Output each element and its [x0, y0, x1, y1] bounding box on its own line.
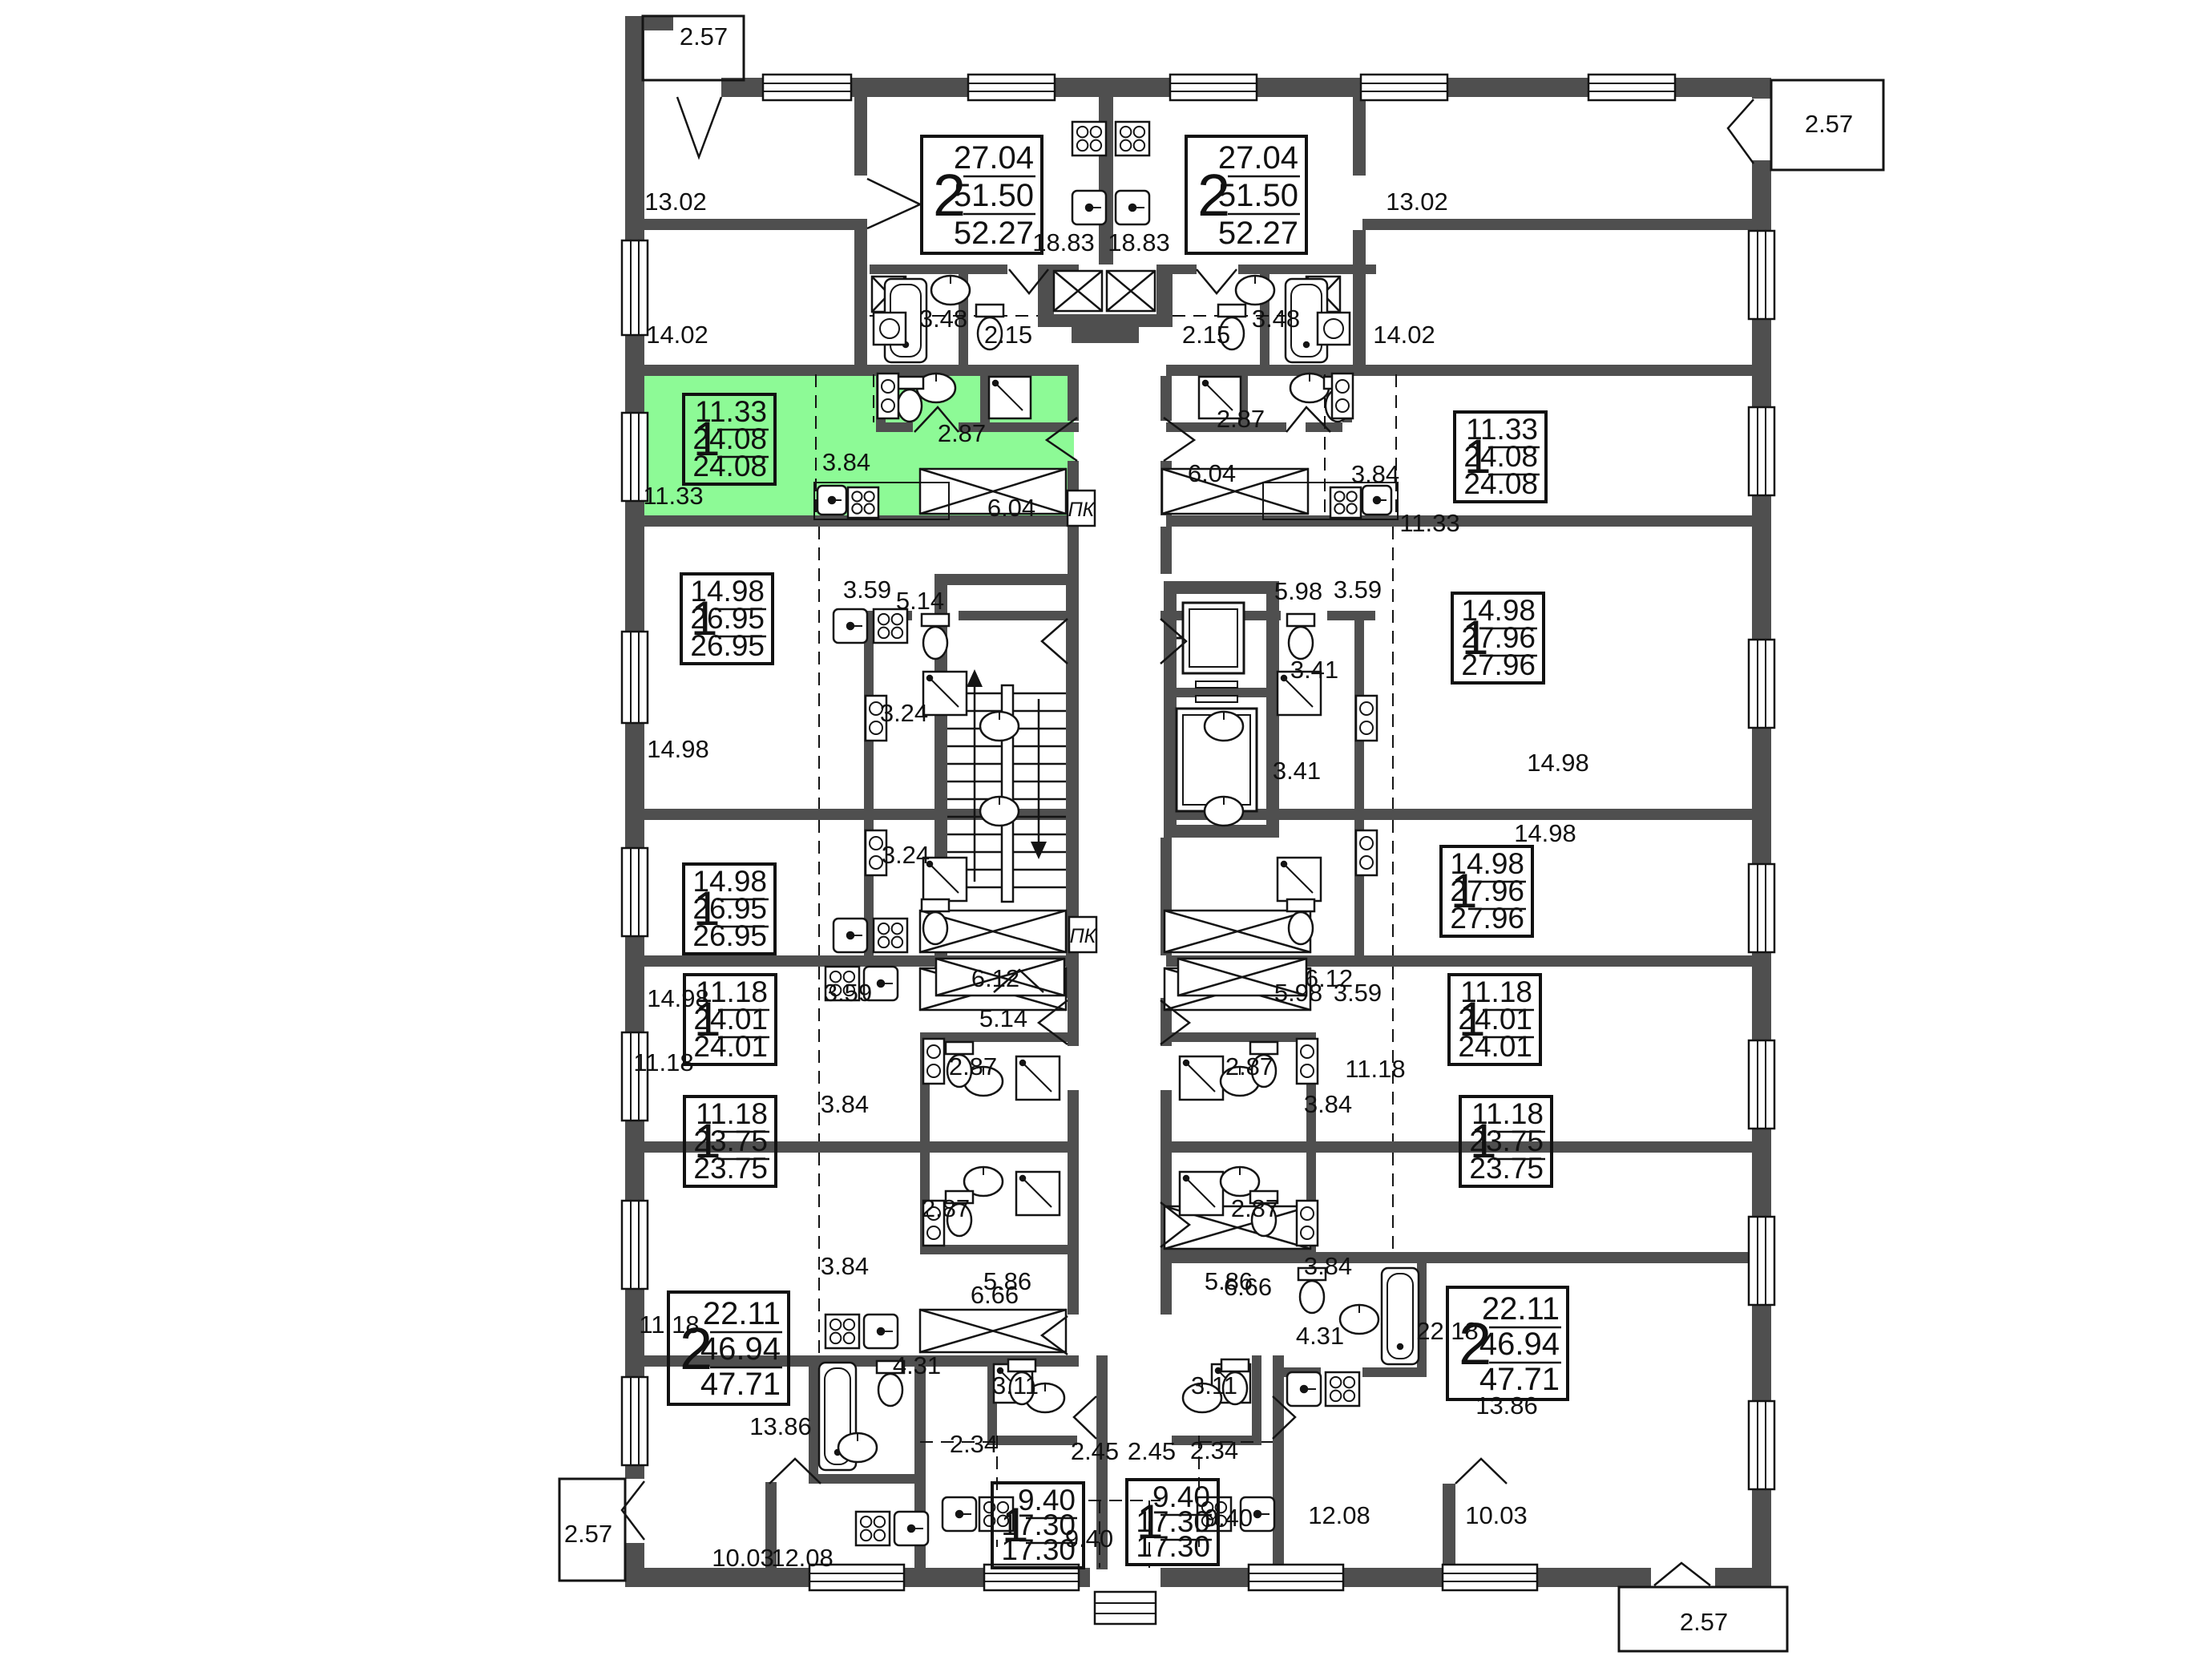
stove-icon — [874, 919, 907, 952]
dim-label: 12.08 — [771, 1544, 834, 1572]
dim-label: 6.12 — [971, 964, 1019, 992]
dim-label: 6.12 — [1305, 964, 1353, 992]
toilet-icon — [922, 899, 949, 911]
wall-segment — [1068, 1141, 1079, 1315]
toilet-icon — [1008, 1359, 1035, 1371]
apartment-area: 51.50 — [954, 178, 1034, 213]
dim-label: 3.84 — [1351, 460, 1399, 488]
toilet-icon — [922, 614, 949, 626]
window-marker — [1749, 231, 1774, 319]
stove-icon — [848, 487, 878, 518]
floor-plan-stage: 227.0451.5052.27227.0451.5052.27111.3324… — [0, 0, 2212, 1668]
dim-label: 2.15 — [984, 321, 1032, 349]
wall-segment — [1443, 1484, 1455, 1569]
dim-label: 3.84 — [1304, 1252, 1352, 1280]
wall-segment — [809, 1474, 926, 1484]
apartment-area: 51.50 — [1218, 178, 1298, 213]
wall-segment — [1715, 1568, 1771, 1587]
dim-label: 9.40 — [1065, 1525, 1113, 1553]
total-area: 52.27 — [1218, 216, 1298, 251]
apartment-info-box[interactable]: 114.9826.9526.95 — [681, 574, 773, 664]
wall-segment — [625, 219, 867, 230]
dim-label: 2.87 — [1231, 1194, 1279, 1222]
toilet-icon — [1221, 1359, 1249, 1371]
apartment-info-box[interactable]: 111.1824.0124.01 — [1449, 975, 1540, 1064]
dim-label: 4.31 — [1296, 1322, 1344, 1350]
dim-label: 3.11 — [992, 1371, 1039, 1399]
wall-segment — [1752, 78, 1771, 99]
dim-label: 14.98 — [1527, 749, 1589, 777]
wall-segment — [1166, 265, 1197, 274]
dim-label: 3.84 — [821, 1252, 869, 1280]
total-area: 47.71 — [700, 1367, 781, 1402]
stove-icon — [1072, 122, 1106, 155]
dim-label: 2.45 — [1128, 1437, 1176, 1465]
window-marker — [622, 1201, 648, 1289]
dim-label: 14.98 — [647, 735, 709, 763]
dim-label: 5.14 — [896, 587, 944, 615]
wall-segment — [1068, 376, 1079, 421]
toilet-icon — [976, 305, 1003, 317]
wall-segment — [1166, 365, 1771, 376]
wall-segment — [625, 365, 1079, 376]
total-area: 23.75 — [1469, 1152, 1544, 1185]
dim-label: 11.18 — [1345, 1055, 1405, 1083]
window-marker — [1749, 1217, 1774, 1305]
wall-segment — [1160, 527, 1172, 574]
total-area: 26.95 — [692, 919, 767, 952]
dim-label: 5.14 — [979, 1004, 1027, 1032]
window-marker — [1249, 1565, 1343, 1590]
dim-label: 2.57 — [1680, 1608, 1728, 1636]
window-marker — [1749, 864, 1774, 952]
stove-icon — [1326, 1372, 1359, 1406]
dim-label: 13.02 — [1386, 188, 1448, 216]
dim-label: 3.84 — [1304, 1090, 1352, 1118]
fire-cabinet-label: ПК — [1068, 499, 1096, 521]
wall-segment — [1164, 581, 1279, 594]
dim-label: 6.04 — [1188, 459, 1236, 487]
wall-segment — [1362, 219, 1771, 230]
dim-label: 11.18 — [633, 1048, 693, 1076]
dim-label: 2.87 — [938, 419, 986, 447]
window-marker — [1443, 1565, 1537, 1590]
dim-label: 4.31 — [893, 1351, 941, 1379]
total-area: 17.30 — [1136, 1530, 1210, 1563]
wall-segment — [1068, 1090, 1079, 1141]
total-area: 27.96 — [1461, 648, 1536, 681]
toilet-icon — [1287, 614, 1314, 626]
wall-segment — [854, 230, 867, 365]
dim-label: 3.41 — [1273, 757, 1321, 785]
fire-cabinet-label: ПК — [1070, 925, 1097, 947]
total-area: 24.08 — [692, 450, 767, 483]
living-area: 27.04 — [954, 140, 1034, 176]
total-area: 24.08 — [1463, 467, 1538, 500]
dim-label: 3.24 — [880, 699, 928, 727]
wall-segment — [1273, 1355, 1284, 1569]
window-marker — [1749, 640, 1774, 728]
window-marker — [622, 240, 648, 335]
wall-segment — [1160, 376, 1172, 421]
stove-icon — [825, 1315, 859, 1348]
apartment-info-box[interactable]: 111.3324.0824.08 — [684, 394, 775, 484]
dim-label: 2.87 — [1225, 1052, 1274, 1080]
wall-segment — [987, 1436, 1077, 1445]
dim-label: 13.02 — [644, 188, 707, 216]
wall-segment — [1160, 1568, 1651, 1587]
dim-label: 2.45 — [1071, 1437, 1119, 1465]
floor-plan: 227.0451.5052.27227.0451.5052.27111.3324… — [0, 0, 2212, 1668]
dim-label: 2.34 — [1190, 1436, 1238, 1464]
dim-label: 2.57 — [564, 1520, 612, 1548]
wall-segment — [625, 16, 673, 30]
wall-segment — [934, 574, 1079, 585]
wall-segment — [1353, 230, 1366, 365]
dim-label: 3.84 — [822, 448, 870, 476]
toilet-icon — [896, 377, 923, 389]
wall-segment — [1169, 1032, 1316, 1042]
total-area: 26.95 — [690, 629, 765, 662]
apartment-info-box[interactable]: 114.9827.9627.96 — [1441, 846, 1532, 936]
wall-segment — [1160, 1090, 1172, 1141]
dim-label: 12.08 — [1308, 1501, 1370, 1529]
dim-label: 13.86 — [749, 1412, 812, 1440]
wall-segment — [1353, 97, 1366, 176]
dim-label: 5.98 — [1274, 577, 1322, 605]
wall-segment — [1166, 515, 1771, 527]
dim-label: 9.40 — [1205, 1504, 1253, 1532]
dim-label: 11.18 — [639, 1311, 699, 1339]
window-marker — [622, 632, 648, 723]
dim-label: 10.03 — [712, 1544, 774, 1572]
dim-label: 2.57 — [680, 22, 728, 50]
dim-label: 2.15 — [1182, 321, 1230, 349]
dim-label: 14.98 — [1514, 819, 1576, 847]
dim-label: 6.66 — [1224, 1273, 1272, 1301]
dim-label: 3.48 — [1252, 305, 1300, 333]
wall-segment — [1252, 1355, 1261, 1436]
total-area: 23.75 — [693, 1152, 768, 1185]
living-area: 22.11 — [1482, 1291, 1560, 1327]
window-marker — [763, 75, 851, 100]
wall-segment — [854, 97, 867, 176]
dim-label: 22.18 — [1416, 1317, 1479, 1345]
total-area: 24.01 — [1458, 1030, 1532, 1063]
apartment-info-box[interactable]: 111.1823.7523.75 — [1460, 1097, 1552, 1186]
apartment-area: 46.94 — [700, 1331, 781, 1367]
stove-icon — [856, 1512, 890, 1545]
dim-label: 3.84 — [821, 1090, 869, 1118]
window-marker — [622, 848, 648, 936]
window-marker — [1361, 75, 1447, 100]
window-marker — [1749, 1040, 1774, 1129]
toilet-icon — [1218, 305, 1245, 317]
wall-segment — [876, 422, 913, 432]
window-marker — [622, 1377, 648, 1465]
dim-label: 6.04 — [987, 494, 1035, 522]
dim-label: 2.87 — [949, 1052, 997, 1080]
total-area: 52.27 — [954, 216, 1034, 251]
apartment-info-box[interactable]: 114.9827.9627.96 — [1452, 593, 1544, 683]
window-marker — [968, 75, 1055, 100]
dim-label: 2.57 — [1805, 110, 1853, 138]
living-area: 22.11 — [703, 1296, 781, 1331]
dim-label: 14.02 — [1373, 321, 1435, 349]
dim-label: 18.83 — [1108, 228, 1170, 256]
wall-segment — [1068, 527, 1079, 574]
dim-label: 14.02 — [646, 321, 708, 349]
apartment-info-box[interactable]: 111.1823.7523.75 — [684, 1097, 776, 1186]
wall-segment — [1072, 327, 1139, 343]
dim-label: 3.11 — [1191, 1371, 1237, 1399]
dim-label: 13.86 — [1475, 1391, 1538, 1420]
dim-label: 14.98 — [647, 984, 709, 1012]
dim-label: 10.03 — [1465, 1501, 1528, 1529]
wall-segment — [870, 265, 1007, 274]
toilet-icon — [1287, 899, 1314, 911]
wall-segment — [1164, 825, 1279, 838]
living-area: 27.04 — [1218, 140, 1298, 176]
window-marker — [1749, 1401, 1774, 1489]
window-marker — [1588, 75, 1675, 100]
dim-label: 3.59 — [824, 979, 872, 1007]
total-area: 24.01 — [693, 1030, 768, 1063]
dim-label: 3.59 — [843, 576, 891, 604]
wall-segment — [1362, 1367, 1427, 1377]
dim-label: 3.48 — [919, 305, 967, 333]
wall-segment — [1238, 265, 1376, 274]
window-marker — [622, 1032, 648, 1121]
apartment-area: 46.94 — [1479, 1327, 1560, 1362]
dim-label: 2.87 — [1217, 405, 1265, 433]
stove-icon — [1116, 122, 1149, 155]
wall-segment — [1038, 314, 1173, 327]
dim-label: 3.59 — [1334, 576, 1382, 604]
apartment-info-box[interactable]: 114.9826.9526.95 — [684, 864, 775, 954]
window-marker — [1749, 407, 1774, 495]
dim-label: 11.33 — [1399, 509, 1459, 537]
dim-label: 3.41 — [1290, 656, 1338, 684]
dim-label: 11.33 — [643, 482, 703, 510]
dim-label: 2.34 — [950, 1430, 998, 1458]
window-marker — [1170, 75, 1257, 100]
apartment-info-box[interactable]: 111.3324.0824.08 — [1455, 412, 1546, 502]
wall-segment — [1327, 611, 1375, 620]
wall-segment — [959, 611, 1079, 620]
stove-icon — [1330, 487, 1361, 518]
dim-label: 3.24 — [882, 841, 930, 869]
total-area: 27.96 — [1450, 902, 1524, 935]
dim-label: 18.83 — [1032, 228, 1095, 256]
dim-label: 6.66 — [971, 1281, 1019, 1309]
wall-segment — [1068, 998, 1079, 1046]
dim-label: 2.87 — [922, 1194, 970, 1222]
wall-segment — [1164, 581, 1177, 838]
